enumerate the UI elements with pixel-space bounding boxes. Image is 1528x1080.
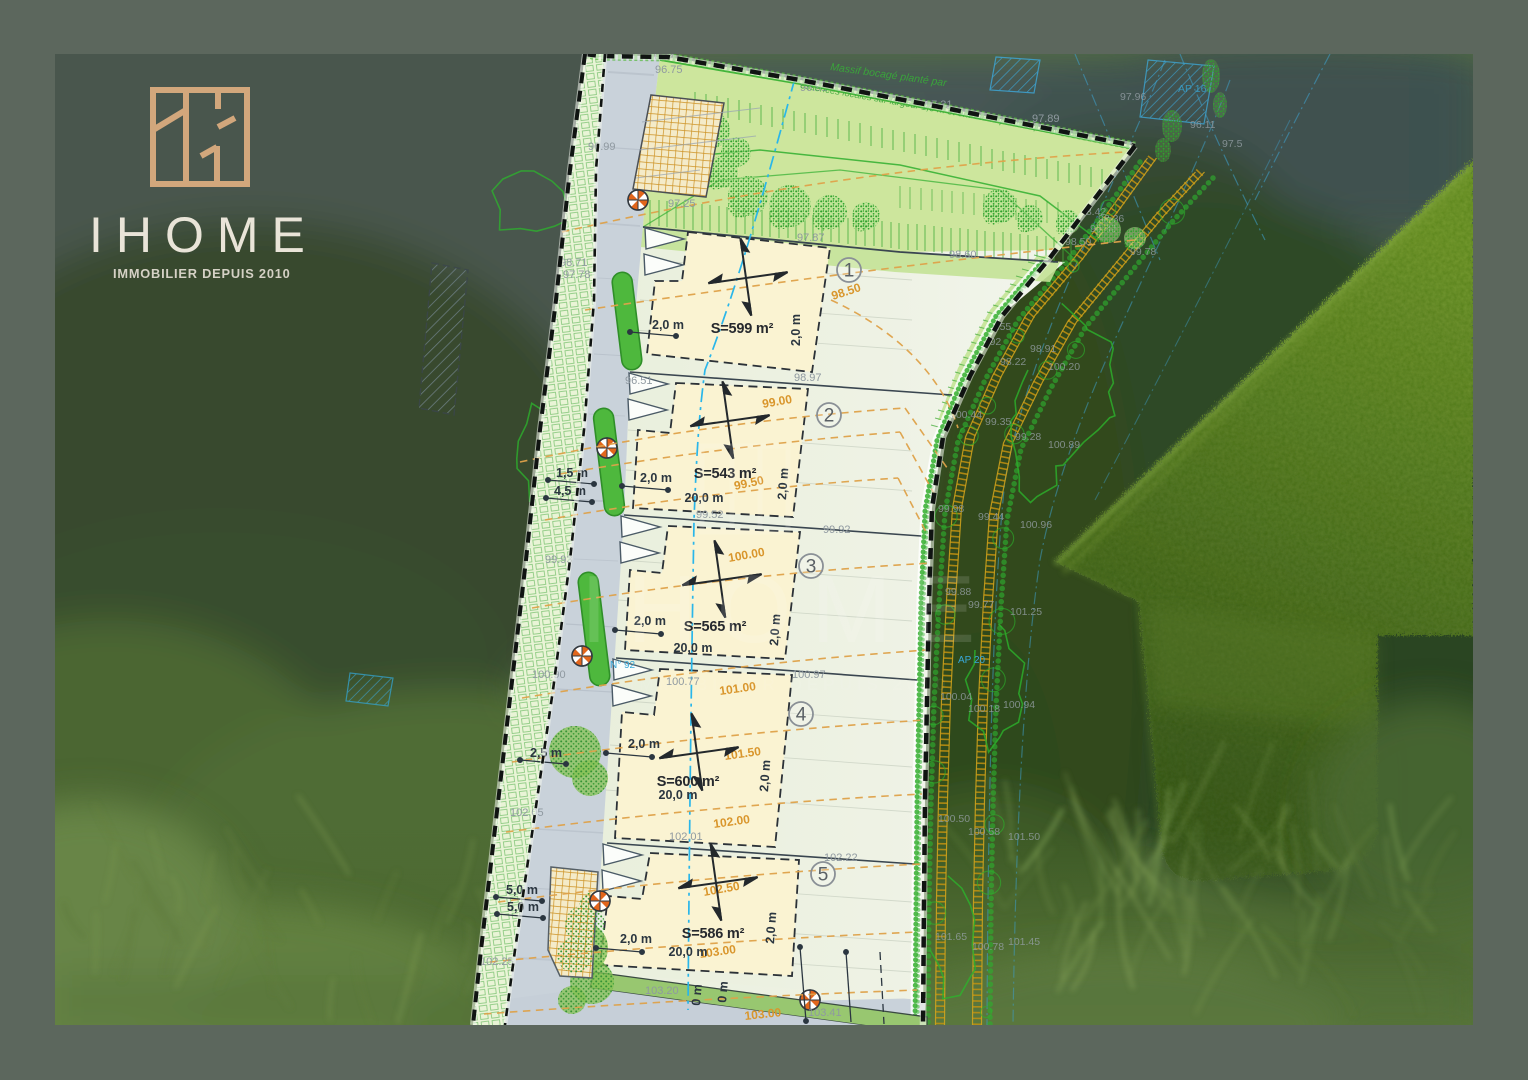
- svg-text:101.50: 101.50: [1008, 831, 1040, 843]
- svg-text:98.22: 98.22: [1000, 356, 1026, 368]
- svg-text:96.11: 96.11: [1190, 119, 1216, 131]
- svg-text:103.20: 103.20: [645, 985, 679, 997]
- svg-text:IHOME: IHOME: [89, 207, 318, 263]
- svg-text:100.94: 100.94: [1003, 699, 1035, 711]
- svg-text:S=599 m²: S=599 m²: [711, 321, 774, 337]
- svg-text:101.25: 101.25: [1010, 606, 1042, 618]
- svg-text:2,0 m: 2,0 m: [763, 911, 779, 944]
- svg-text:2,0 m: 2,0 m: [757, 759, 773, 792]
- svg-text:2,0 m: 2,0 m: [640, 471, 672, 485]
- svg-text:101.45: 101.45: [1008, 936, 1040, 948]
- svg-text:0 m: 0 m: [715, 981, 731, 1004]
- svg-text:100.90: 100.90: [532, 669, 566, 681]
- svg-text:96.99: 96.99: [588, 141, 616, 153]
- svg-text:98.60: 98.60: [949, 249, 977, 261]
- svg-text:1: 1: [844, 261, 855, 282]
- svg-text:102.01: 102.01: [669, 831, 703, 843]
- svg-text:96.51: 96.51: [625, 375, 653, 387]
- svg-text:5: 5: [818, 865, 829, 886]
- svg-text:IHOME: IHOME: [581, 556, 996, 663]
- svg-text:100.96: 100.96: [1020, 519, 1052, 531]
- svg-text:4: 4: [796, 705, 807, 726]
- svg-text:102.05: 102.05: [510, 807, 544, 819]
- svg-text:101.65: 101.65: [935, 931, 967, 943]
- svg-text:103.41: 103.41: [808, 1007, 842, 1019]
- svg-text:2,0 m: 2,0 m: [628, 737, 660, 751]
- svg-text:2,0 m: 2,0 m: [789, 314, 803, 346]
- svg-text:20,0 m: 20,0 m: [659, 788, 698, 802]
- svg-text:97.96: 97.96: [1120, 91, 1146, 103]
- svg-text:IMMOBILIER DEPUIS 2010: IMMOBILIER DEPUIS 2010: [113, 266, 291, 281]
- svg-text:97.25: 97.25: [668, 198, 696, 210]
- svg-text:100.89: 100.89: [1048, 439, 1080, 451]
- svg-text:2,0 m: 2,0 m: [652, 318, 684, 332]
- svg-text:1,5 m: 1,5 m: [556, 466, 588, 480]
- svg-text:100.78: 100.78: [972, 941, 1004, 953]
- svg-text:99.28: 99.28: [1015, 431, 1041, 443]
- svg-text:99.98: 99.98: [938, 503, 964, 515]
- svg-text:S=586 m²: S=586 m²: [682, 926, 745, 942]
- svg-text:96.75: 96.75: [655, 64, 683, 76]
- svg-text:2: 2: [824, 406, 835, 427]
- svg-text:98.91: 98.91: [1030, 343, 1056, 355]
- svg-text:AP 16: AP 16: [1178, 83, 1207, 95]
- svg-text:97.87: 97.87: [797, 232, 825, 244]
- svg-text:97.5: 97.5: [1222, 138, 1243, 150]
- svg-text:2,0 m: 2,0 m: [620, 932, 652, 946]
- svg-text:IMMOBILIER DEPUIS 2010: IMMOBILIER DEPUIS 2010: [630, 675, 951, 694]
- svg-text:100.18: 100.18: [968, 703, 1000, 715]
- svg-text:98.97: 98.97: [794, 372, 822, 384]
- svg-text:0 m: 0 m: [689, 984, 705, 1007]
- svg-text:100.58: 100.58: [968, 826, 1000, 838]
- svg-text:97.78: 97.78: [563, 269, 591, 281]
- svg-text:100.50: 100.50: [938, 813, 970, 825]
- svg-text:99.92: 99.92: [823, 524, 851, 536]
- svg-text:99.35: 99.35: [985, 416, 1011, 428]
- svg-text:99.44: 99.44: [978, 511, 1004, 523]
- svg-text:98.71: 98.71: [560, 257, 588, 269]
- svg-text:20,0 m: 20,0 m: [669, 945, 708, 959]
- svg-text:4,5 m: 4,5 m: [554, 484, 586, 498]
- svg-text:100.20: 100.20: [1048, 361, 1080, 373]
- svg-text:102.25: 102.25: [480, 956, 514, 968]
- svg-text:102.22: 102.22: [824, 852, 858, 864]
